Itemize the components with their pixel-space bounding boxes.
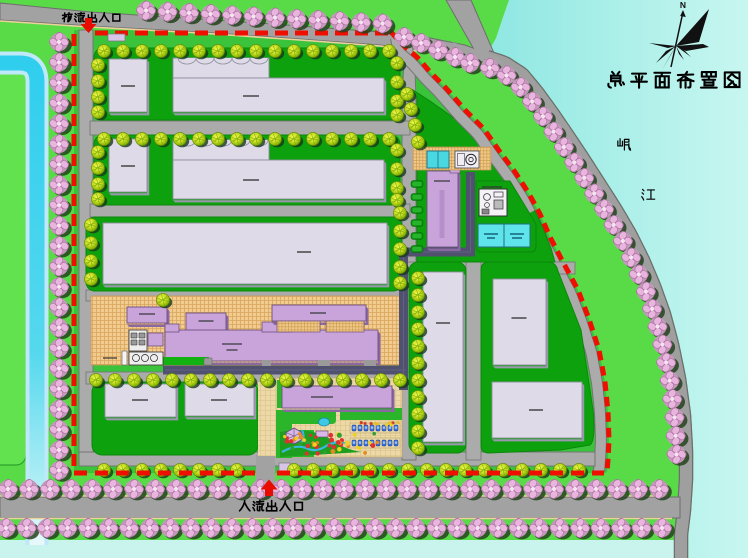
svg-text:N: N [680, 0, 686, 10]
